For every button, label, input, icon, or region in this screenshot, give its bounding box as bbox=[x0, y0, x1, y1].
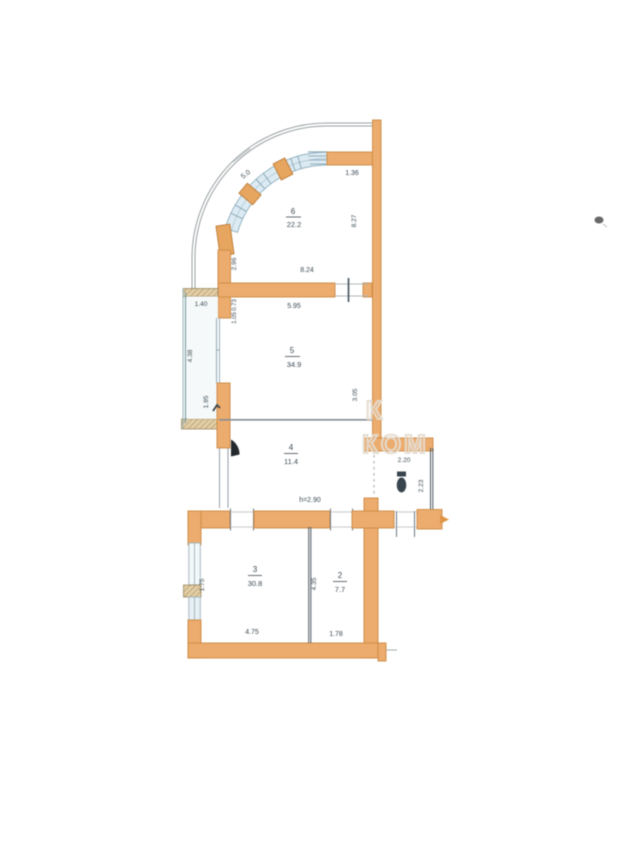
svg-text:4.75: 4.75 bbox=[245, 629, 259, 636]
svg-text:5.0: 5.0 bbox=[240, 169, 252, 181]
svg-text:1.95: 1.95 bbox=[203, 395, 210, 408]
svg-text:5: 5 bbox=[290, 346, 295, 355]
svg-text:22.2: 22.2 bbox=[287, 220, 302, 229]
svg-text:4.35: 4.35 bbox=[311, 577, 318, 590]
svg-text:1.36: 1.36 bbox=[345, 170, 359, 177]
svg-text:8.24: 8.24 bbox=[300, 267, 314, 274]
svg-text:1.05: 1.05 bbox=[232, 312, 238, 324]
svg-text:2: 2 bbox=[338, 571, 343, 580]
svg-text:11.4: 11.4 bbox=[284, 457, 298, 466]
svg-text:h=2.90: h=2.90 bbox=[299, 497, 321, 504]
svg-text:К: К bbox=[366, 395, 382, 425]
svg-text:3.05: 3.05 bbox=[352, 388, 359, 401]
svg-text:7.7: 7.7 bbox=[335, 585, 345, 594]
svg-text:1.78: 1.78 bbox=[329, 631, 343, 638]
svg-text:4.38: 4.38 bbox=[187, 349, 194, 362]
svg-text:30.8: 30.8 bbox=[248, 579, 263, 588]
svg-text:2.20: 2.20 bbox=[398, 457, 411, 464]
svg-text:5.95: 5.95 bbox=[287, 303, 301, 310]
svg-text:6: 6 bbox=[291, 207, 296, 216]
svg-text:4: 4 bbox=[289, 443, 294, 452]
svg-text:2.23: 2.23 bbox=[418, 479, 425, 492]
svg-text:2.96: 2.96 bbox=[231, 257, 238, 270]
svg-text:3: 3 bbox=[253, 565, 258, 574]
svg-text:8.27: 8.27 bbox=[351, 214, 358, 227]
svg-text:1.40: 1.40 bbox=[195, 301, 208, 308]
svg-text:КОМ: КОМ bbox=[362, 429, 429, 459]
svg-text:0.73: 0.73 bbox=[232, 299, 238, 311]
svg-text:34.9: 34.9 bbox=[287, 360, 302, 369]
svg-text:1.75: 1.75 bbox=[199, 578, 206, 591]
